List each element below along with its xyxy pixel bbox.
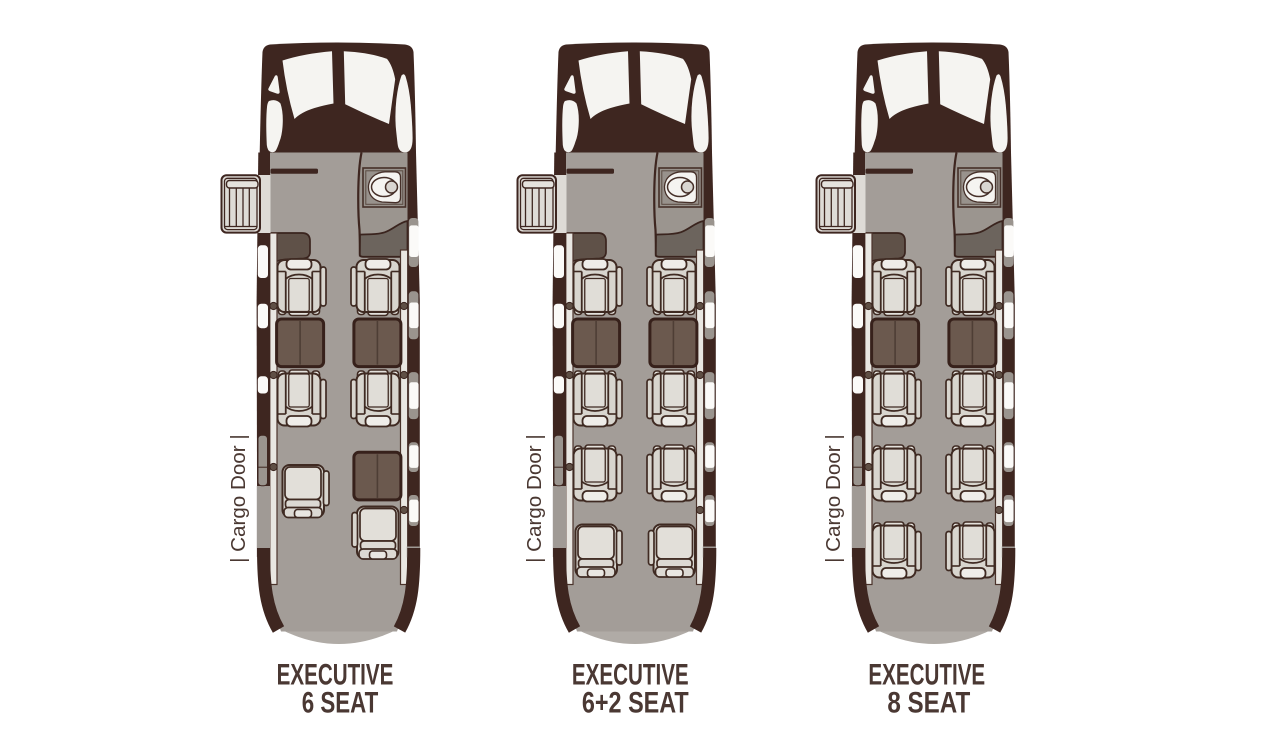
svg-text:8 SEAT: 8 SEAT xyxy=(887,685,970,719)
svg-text:6+2 SEAT: 6+2 SEAT xyxy=(582,686,689,719)
svg-text:6 SEAT: 6 SEAT xyxy=(302,685,379,719)
